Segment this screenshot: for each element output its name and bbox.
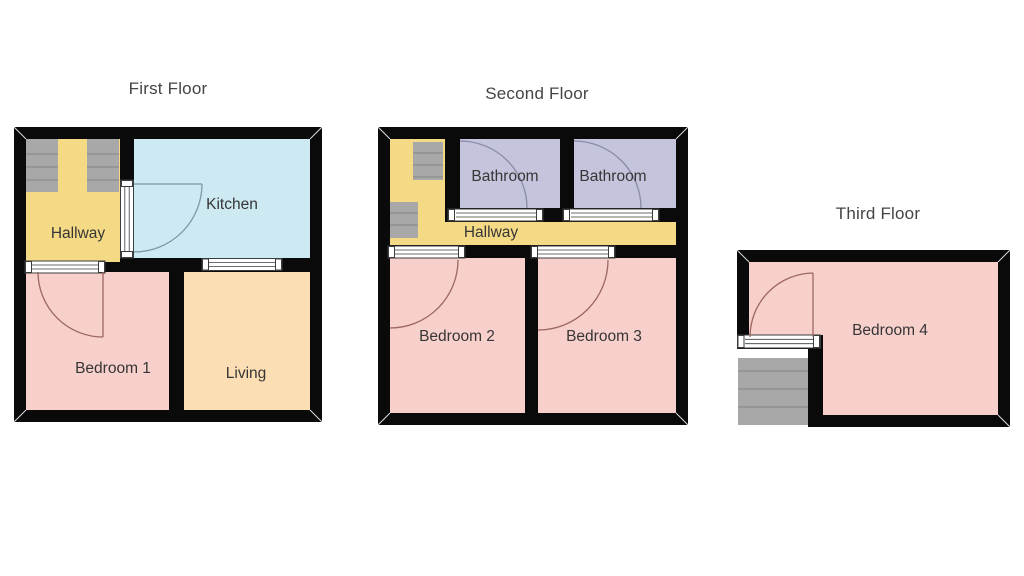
room-label-bedroom-3: Bedroom 3 — [566, 328, 642, 346]
bedroom-1-door-bar — [25, 261, 105, 273]
third-floor-plan — [737, 250, 1010, 430]
room-label-bedroom-4: Bedroom 4 — [852, 322, 928, 340]
room-label-bedroom-1: Bedroom 1 — [75, 360, 151, 378]
kitchen-living-window-bar — [202, 259, 282, 271]
room-label-hallway-first: Hallway — [51, 225, 105, 243]
room-label-hallway-second: Hallway — [464, 224, 518, 242]
room-label-living: Living — [226, 365, 267, 383]
bathroom-2-door-bar — [563, 209, 659, 221]
room-label-kitchen: Kitchen — [206, 196, 258, 214]
hallway-strip — [390, 222, 676, 245]
first-floor-title: First Floor — [129, 79, 208, 99]
kitchen-door-bar — [121, 180, 134, 258]
staircase — [738, 358, 808, 425]
first-floor-plan — [14, 127, 322, 422]
room-label-bedroom-2: Bedroom 2 — [419, 328, 495, 346]
bedroom-2-door-bar — [388, 246, 465, 258]
room-label-bathroom-2: Bathroom — [579, 168, 646, 186]
living-room — [184, 272, 310, 410]
second-floor-title: Second Floor — [485, 84, 589, 104]
bedroom-3-door-bar — [531, 246, 615, 258]
third-floor-title: Third Floor — [836, 204, 920, 224]
room-label-bathroom-1: Bathroom — [471, 168, 538, 186]
bedroom-1-room — [26, 272, 169, 410]
bathroom-1-door-bar — [448, 209, 543, 221]
floorplan-canvas: First Floor — [0, 0, 1024, 576]
